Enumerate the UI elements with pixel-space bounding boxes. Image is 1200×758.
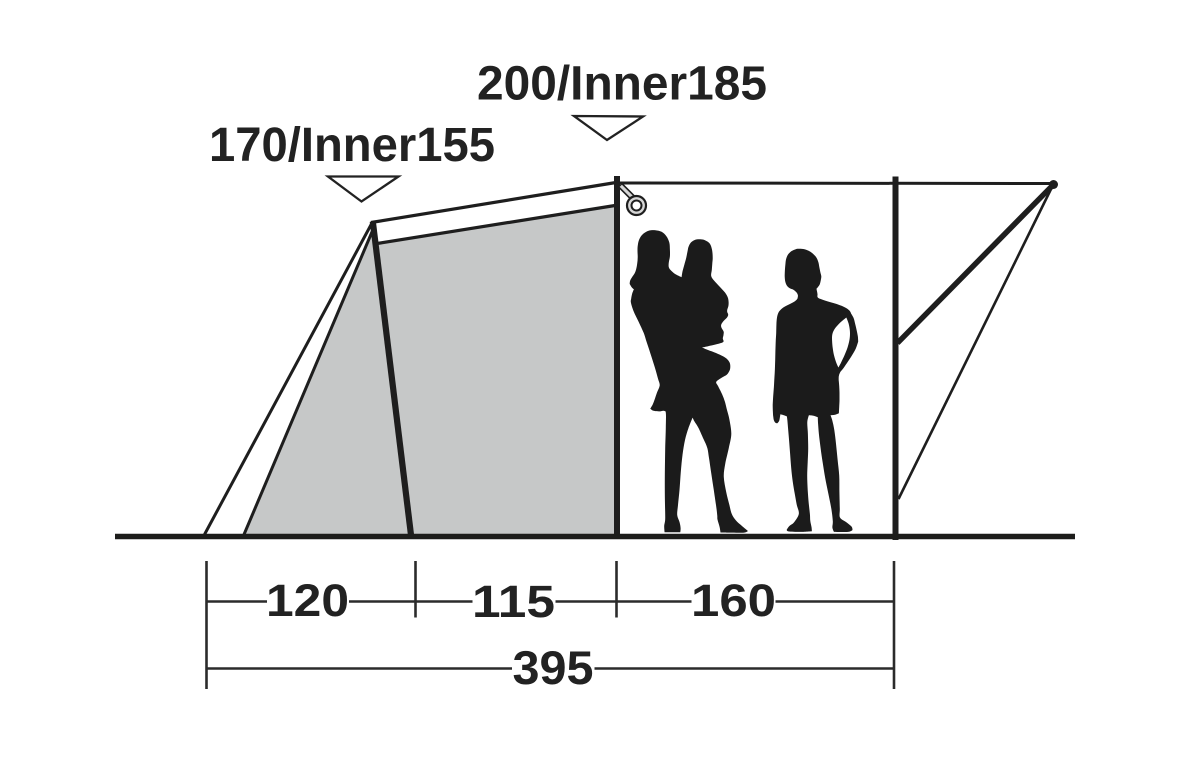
svg-text:160: 160 [691,575,776,626]
svg-text:120: 120 [266,575,349,626]
svg-text:170/Inner155: 170/Inner155 [209,119,495,172]
svg-text:395: 395 [513,642,594,695]
svg-text:200/Inner185: 200/Inner185 [477,58,767,111]
svg-text:115: 115 [472,576,555,627]
